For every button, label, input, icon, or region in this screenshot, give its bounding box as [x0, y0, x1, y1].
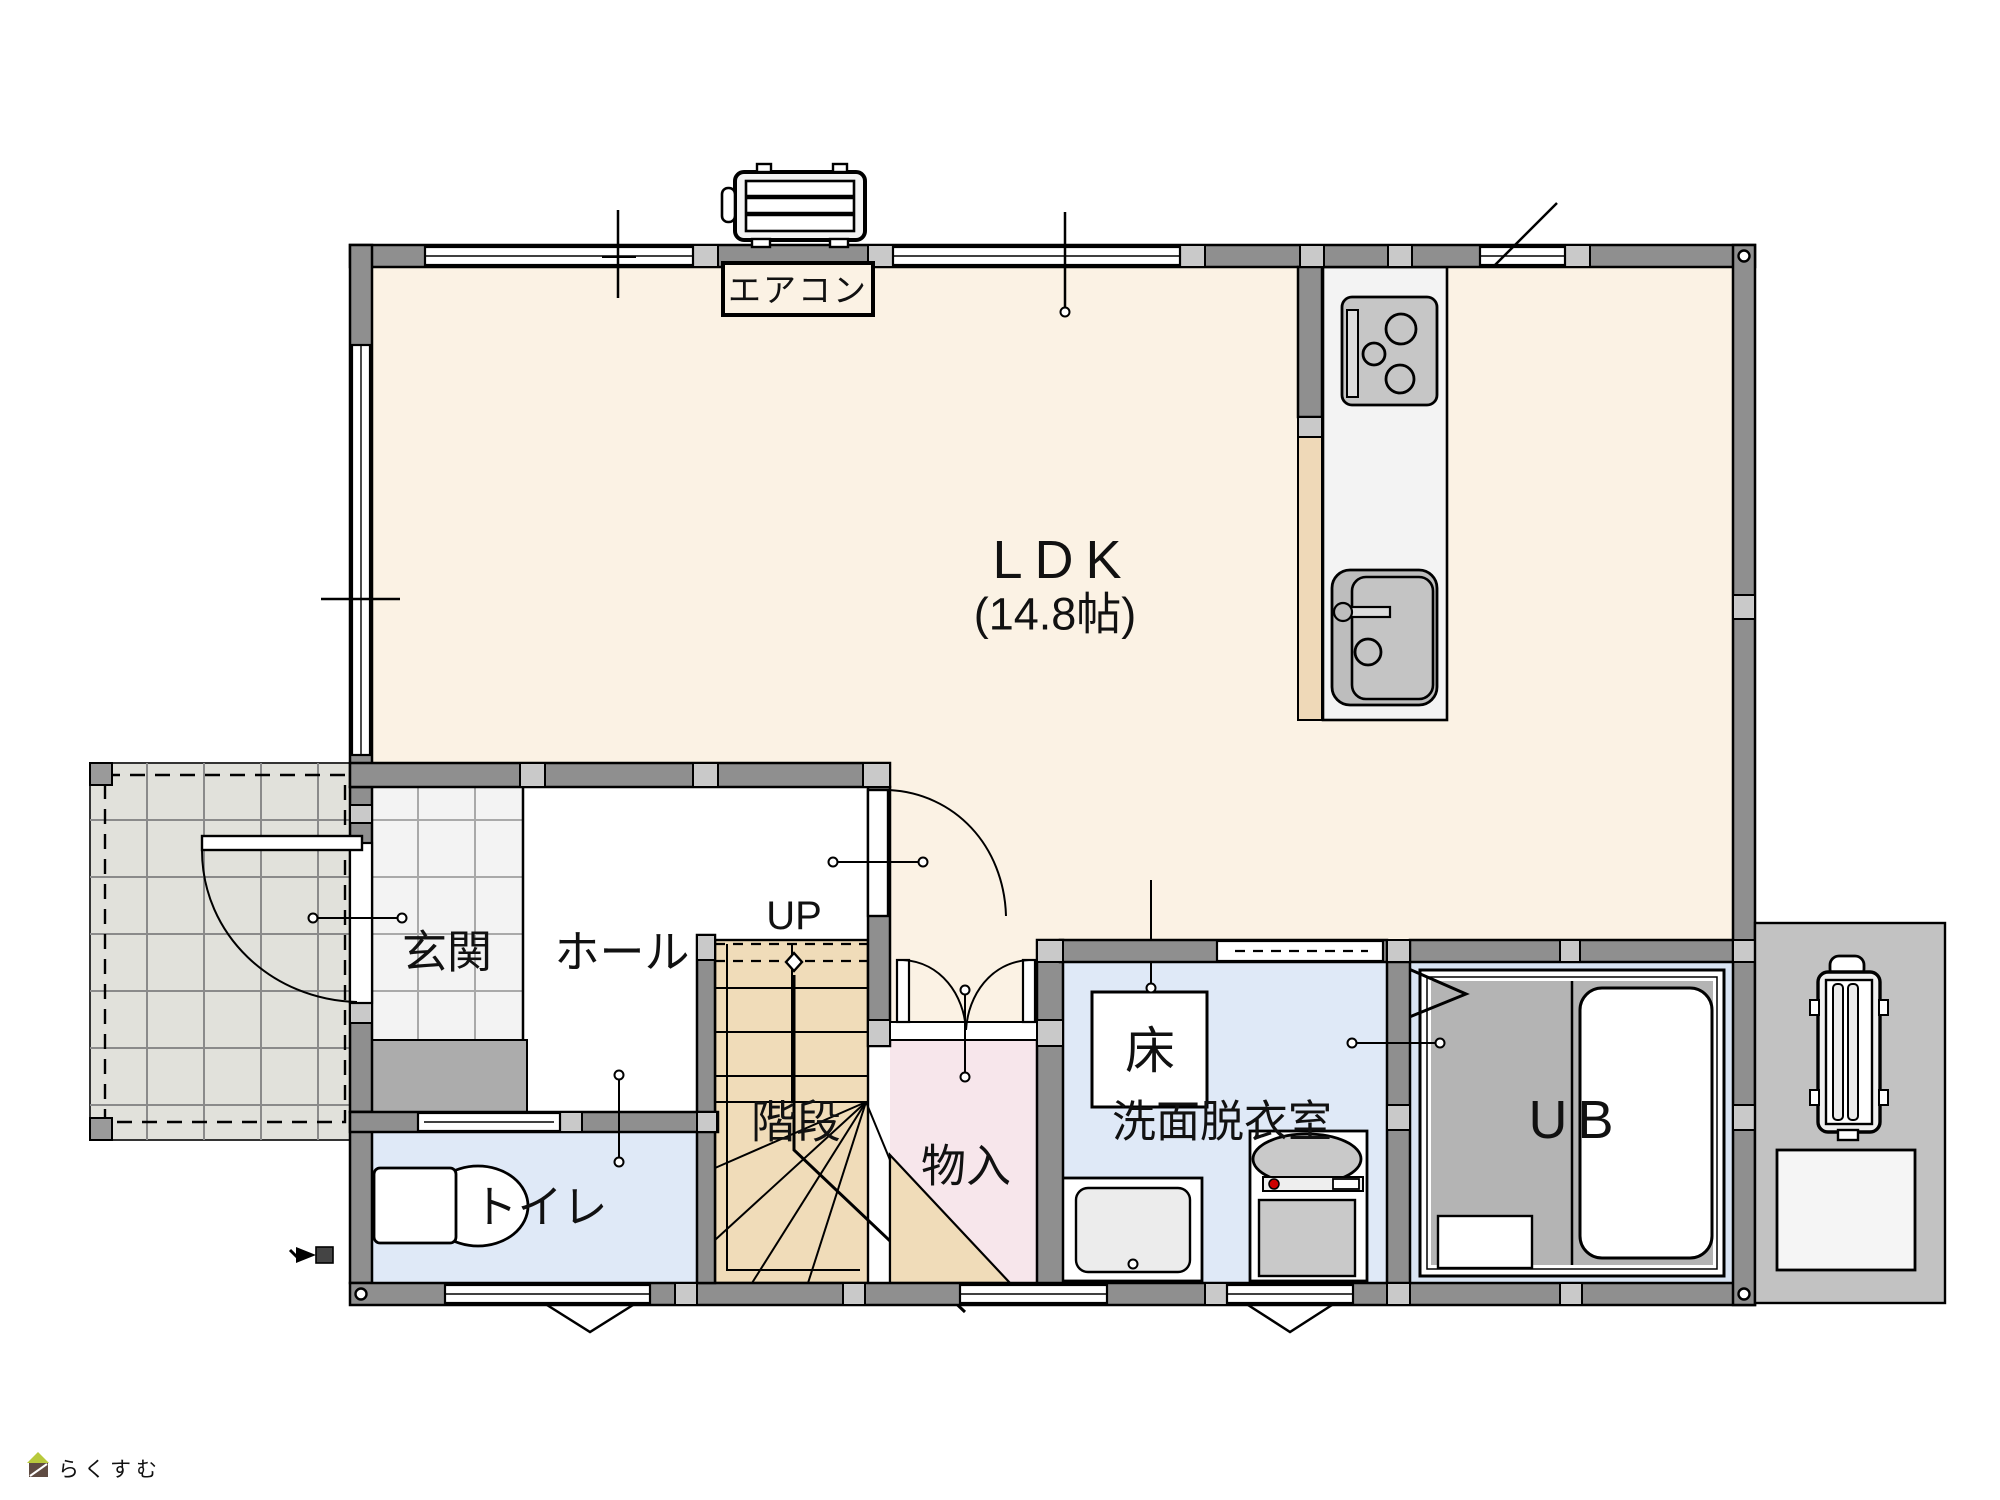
- logo-text: らくすむ: [58, 1459, 162, 1482]
- window-bottom-washroom: [1227, 1285, 1353, 1332]
- pad-equipment-base: [1777, 1150, 1915, 1270]
- window-bottom-closet: [960, 1285, 1107, 1303]
- floor-plan-page: エアコン LDK (14.8帖) 玄関 ホール UP 階段 物入 トイレ: [0, 0, 2000, 1500]
- house-logo-icon: [27, 1452, 49, 1477]
- faucet-spout: [1348, 607, 1390, 617]
- outdoor-service-pad: [1755, 923, 1945, 1303]
- closet-label: 物入: [921, 1141, 1011, 1192]
- toilet-sliding-door: [418, 1113, 560, 1131]
- stove-icon: [1342, 297, 1437, 405]
- ldk-label: LDK: [992, 530, 1133, 590]
- corner-post-marker: [1739, 251, 1750, 262]
- site-logo: らくすむ: [27, 1452, 162, 1482]
- washroom-label: 洗面脱衣室: [1112, 1098, 1332, 1147]
- window-bottom-toilet: [445, 1285, 650, 1332]
- stairs-label: 階段: [751, 1097, 841, 1148]
- stairs-up-label: UP: [766, 894, 822, 938]
- faucet-handle: [1334, 603, 1352, 621]
- toilet-label: トイレ: [472, 1182, 607, 1233]
- awning-window-mark: [1248, 1305, 1332, 1332]
- washroom-sliding-door: [1217, 941, 1383, 961]
- entrance-label: 玄関: [402, 927, 492, 978]
- aircon-label: エアコン: [728, 272, 868, 309]
- kitchen-half-wall: [1298, 437, 1322, 720]
- corner-post-marker: [1739, 1289, 1750, 1300]
- awning-window-mark: [547, 1305, 633, 1332]
- outdoor-faucet-icon: [290, 1247, 333, 1263]
- vanity-icon: [1250, 1131, 1367, 1281]
- porch-post: [90, 763, 112, 785]
- bath-mat: [1438, 1216, 1532, 1268]
- washing-machine-icon: [1062, 1178, 1202, 1281]
- porch: [90, 763, 350, 1140]
- porch-post: [90, 1118, 112, 1140]
- floor-hatch-label: 床: [1125, 1023, 1175, 1079]
- corner-post-marker: [356, 1289, 367, 1300]
- ldk-size-label: (14.8帖): [974, 589, 1137, 640]
- sink-icon: [1332, 570, 1437, 705]
- floor-plan: エアコン LDK (14.8帖) 玄関 ホール UP 階段 物入 トイレ: [0, 0, 2000, 1500]
- entrance-step: [372, 1040, 527, 1112]
- window-top-right-vent: [1480, 203, 1565, 265]
- ac-outdoor-unit-icon: [722, 164, 865, 247]
- aircon-label-box: エアコン: [723, 263, 873, 315]
- water-heater-icon: [1810, 956, 1888, 1140]
- bath-label: UB: [1528, 1090, 1623, 1150]
- hall-label: ホール: [554, 927, 689, 978]
